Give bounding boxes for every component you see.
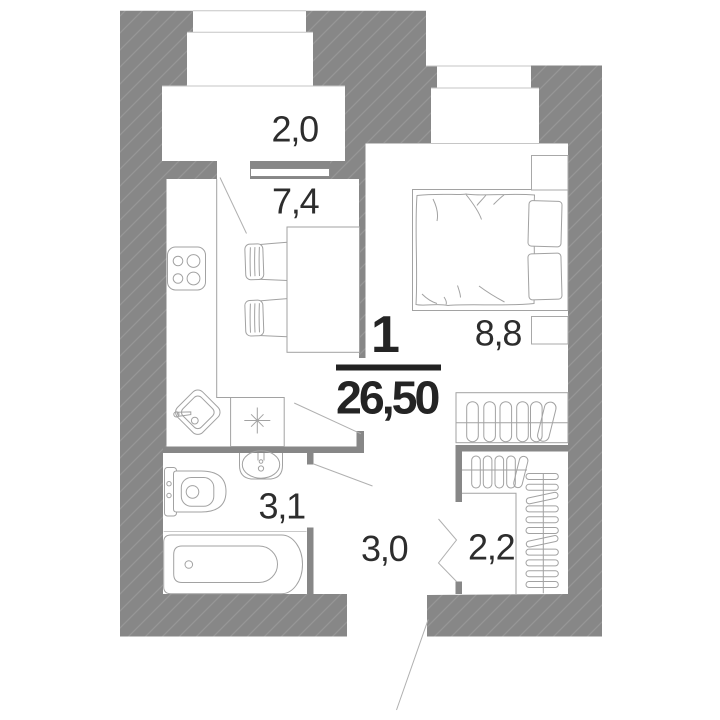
svg-text:1: 1 xyxy=(371,306,400,364)
svg-text:2,2: 2,2 xyxy=(468,527,515,568)
svg-text:2,0: 2,0 xyxy=(272,108,319,149)
svg-text:8,8: 8,8 xyxy=(475,312,522,353)
svg-text:26,50: 26,50 xyxy=(336,372,439,424)
svg-text:3,0: 3,0 xyxy=(361,528,408,569)
svg-text:3,1: 3,1 xyxy=(259,486,306,527)
svg-text:7,4: 7,4 xyxy=(272,181,319,222)
